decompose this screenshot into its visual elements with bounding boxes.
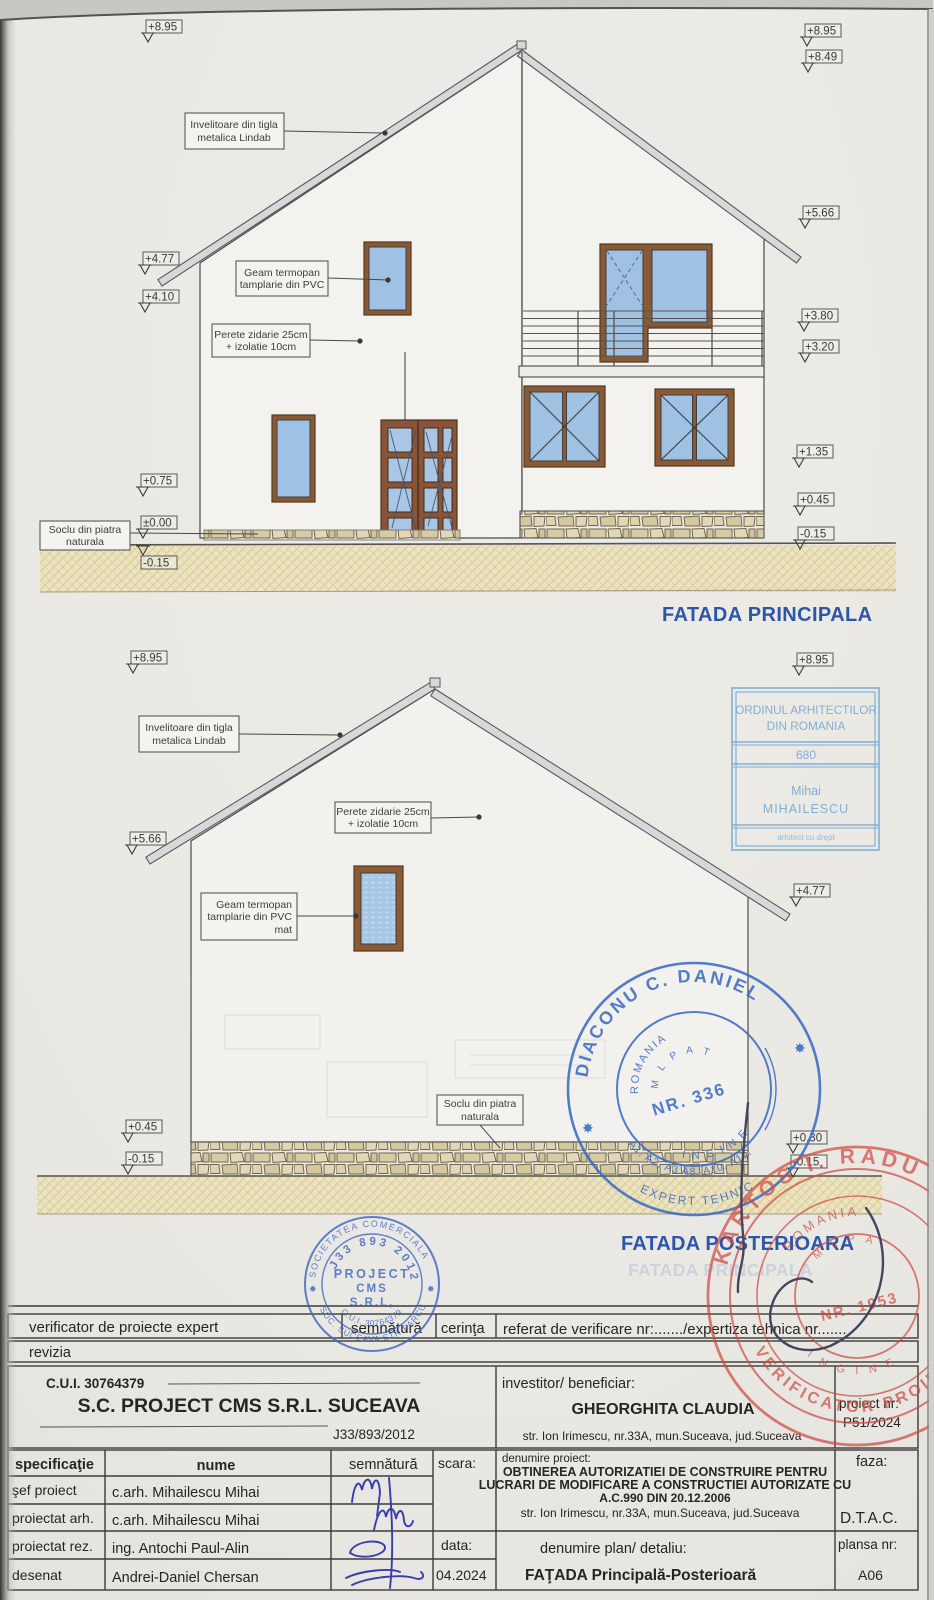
svg-text:S.C. PROJECT CMS S.R.L. SUCEAV: S.C. PROJECT CMS S.R.L. SUCEAVA [78, 1395, 421, 1417]
svg-text:PROJECT: PROJECT [334, 1267, 411, 1281]
svg-text:tamplarie din PVC: tamplarie din PVC [240, 279, 325, 291]
svg-text:A.C.990 DIN 20.12.2006: A.C.990 DIN 20.12.2006 [599, 1491, 731, 1505]
svg-text:+4.77: +4.77 [145, 254, 174, 266]
svg-text:680: 680 [796, 748, 816, 762]
svg-text:-0.15: -0.15 [800, 529, 826, 541]
svg-text:scara:: scara: [438, 1455, 476, 1471]
svg-text:cerinţa: cerinţa [441, 1321, 485, 1337]
svg-text:+4.10: +4.10 [145, 292, 174, 304]
svg-text:c.arh. Mihailescu Mihai: c.arh. Mihailescu Mihai [112, 1513, 259, 1529]
svg-text:arhitect cu drept: arhitect cu drept [777, 833, 835, 842]
svg-text:LUCRARI DE MODIFICARE A CONSTR: LUCRARI DE MODIFICARE A CONSTRUCTIEI AUT… [479, 1478, 851, 1492]
svg-text:✸: ✸ [427, 1284, 435, 1294]
svg-text:Mihai: Mihai [791, 784, 821, 798]
svg-text:str. Ion Irimescu, nr.33A, mun: str. Ion Irimescu, nr.33A, mun.Suceava, … [521, 1506, 800, 1520]
svg-text:nume: nume [197, 1458, 236, 1474]
svg-text:data:: data: [441, 1537, 472, 1553]
svg-text:+4.77: +4.77 [796, 886, 825, 898]
svg-text:ORDINUL ARHITECTILOR: ORDINUL ARHITECTILOR [735, 703, 877, 717]
svg-text:MIHAILESCU: MIHAILESCU [763, 802, 849, 816]
svg-text:GHEORGHITA CLAUDIA: GHEORGHITA CLAUDIA [571, 1401, 755, 1418]
svg-text:-0.15: -0.15 [143, 558, 169, 570]
svg-text:Invelitoare din tigla: Invelitoare din tigla [190, 119, 278, 131]
svg-text:denumire plan/ detaliu:: denumire plan/ detaliu: [540, 1541, 687, 1557]
svg-text:+3.80: +3.80 [804, 311, 833, 323]
svg-text:verificator de proiecte expert: verificator de proiecte expert [29, 1319, 219, 1336]
svg-text:investitor/ beneficiar:: investitor/ beneficiar: [502, 1376, 635, 1392]
svg-text:Geam termopan: Geam termopan [216, 899, 292, 911]
svg-text:semnătură: semnătură [349, 1457, 418, 1473]
svg-text:✸: ✸ [794, 1040, 806, 1056]
svg-text:A06: A06 [858, 1567, 883, 1583]
svg-text:+0.45: +0.45 [800, 495, 829, 507]
svg-text:proiectat arh.: proiectat arh. [12, 1510, 94, 1526]
svg-text:tamplarie din PVC: tamplarie din PVC [207, 911, 292, 923]
svg-text:J33/893/2012: J33/893/2012 [333, 1427, 415, 1442]
svg-text:plansa nr:: plansa nr: [838, 1537, 897, 1552]
svg-text:revizia: revizia [29, 1345, 72, 1361]
svg-text:specificaţie: specificaţie [15, 1457, 94, 1473]
svg-text:Perete zidarie 25cm: Perete zidarie 25cm [214, 329, 308, 341]
svg-text:✸: ✸ [309, 1284, 317, 1294]
svg-text:+0.75: +0.75 [143, 476, 172, 488]
svg-text:S.R.L,: S.R.L, [350, 1297, 395, 1309]
svg-text:+8.95: +8.95 [807, 26, 836, 38]
svg-text:+0.45: +0.45 [128, 1122, 157, 1134]
svg-text:Soclu din piatra: Soclu din piatra [444, 1098, 517, 1110]
svg-text:denumire proiect:: denumire proiect: [502, 1453, 591, 1465]
svg-text:+5.66: +5.66 [805, 208, 834, 220]
svg-text:DIN ROMANIA: DIN ROMANIA [767, 719, 846, 733]
svg-text:+ izolatie 10cm: + izolatie 10cm [348, 818, 419, 830]
svg-text:+1.35: +1.35 [799, 447, 828, 459]
svg-text:mat: mat [274, 924, 292, 936]
svg-text:proiectat rez.: proiectat rez. [12, 1538, 93, 1554]
svg-text:Geam termopan: Geam termopan [244, 267, 320, 279]
svg-text:metalica Lindab: metalica Lindab [152, 735, 226, 747]
svg-text:naturala: naturala [461, 1111, 499, 1123]
svg-text:±0.00: ±0.00 [143, 518, 172, 530]
svg-text:CMS: CMS [356, 1283, 388, 1295]
svg-text:Invelitoare din tigla: Invelitoare din tigla [145, 722, 233, 734]
svg-text:+3.20: +3.20 [805, 342, 834, 354]
svg-text:✸: ✸ [582, 1120, 594, 1136]
svg-text:04.2024: 04.2024 [436, 1567, 487, 1583]
svg-text:D.T.A.C.: D.T.A.C. [840, 1510, 898, 1527]
svg-text:+8.95: +8.95 [148, 22, 177, 34]
svg-text:naturala: naturala [66, 536, 104, 548]
svg-text:str. Ion Irimescu, nr.33A, mun: str. Ion Irimescu, nr.33A, mun.Suceava, … [523, 1429, 802, 1443]
svg-text:faza:: faza: [856, 1454, 887, 1470]
svg-text:Soclu din piatra: Soclu din piatra [49, 524, 122, 536]
svg-text:Perete zidarie 25cm: Perete zidarie 25cm [336, 806, 430, 818]
svg-text:desenat: desenat [12, 1567, 62, 1583]
svg-text:+8.95: +8.95 [133, 653, 162, 665]
svg-text:+5.66: +5.66 [132, 834, 161, 846]
svg-text:FAŢADA Principală-Posterioară: FAŢADA Principală-Posterioară [525, 1567, 757, 1584]
svg-text:OBTINEREA AUTORIZATIEI DE CONS: OBTINEREA AUTORIZATIEI DE CONSTRUIRE PEN… [503, 1465, 827, 1479]
svg-text:metalica Lindab: metalica Lindab [197, 132, 271, 144]
svg-text:FATADA PRINCIPALA: FATADA PRINCIPALA [662, 604, 873, 626]
svg-text:ing. Antochi Paul-Alin: ing. Antochi Paul-Alin [112, 1541, 249, 1557]
svg-text:c.arh. Mihailescu Mihai: c.arh. Mihailescu Mihai [112, 1485, 259, 1501]
svg-text:-0.15: -0.15 [128, 1154, 154, 1166]
svg-text:Andrei-Daniel Chersan: Andrei-Daniel Chersan [112, 1570, 259, 1586]
svg-text:C.U.I. 30764379: C.U.I. 30764379 [46, 1376, 144, 1391]
svg-text:+8.49: +8.49 [808, 52, 837, 64]
svg-text:+ izolatie 10cm: + izolatie 10cm [226, 341, 297, 353]
svg-text:+8.95: +8.95 [799, 655, 828, 667]
svg-text:şef proiect: şef proiect [12, 1482, 77, 1498]
svg-text:referat de verificare nr:.....: referat de verificare nr:......./experti… [503, 1321, 846, 1338]
